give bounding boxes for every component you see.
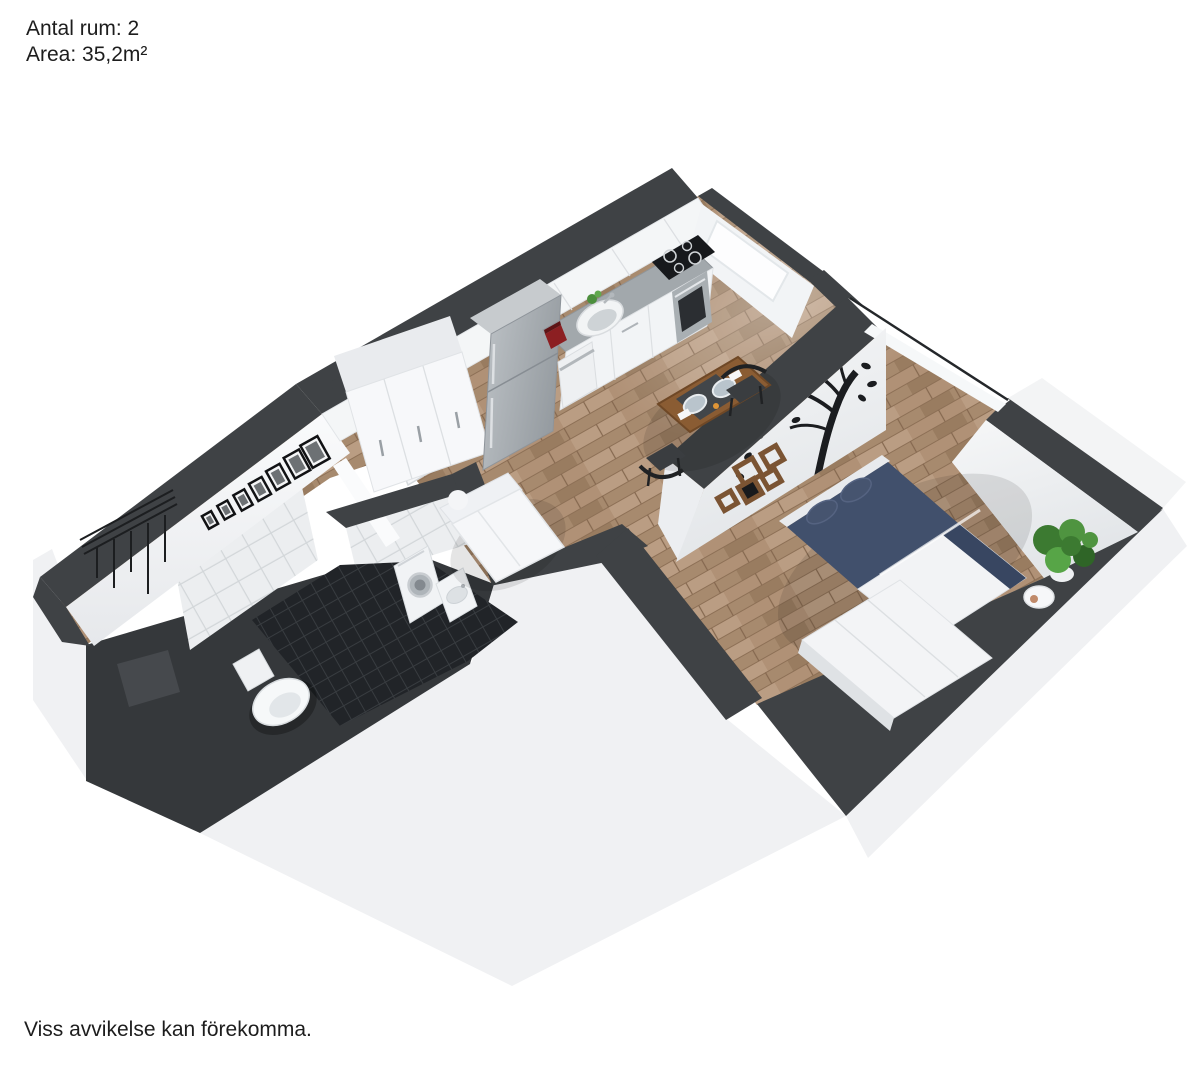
floor-plan-render xyxy=(0,0,1200,1066)
area-label: Area: 35,2m² xyxy=(26,42,147,68)
decor-item xyxy=(1030,595,1038,603)
candle xyxy=(713,403,719,409)
floorplan-page: Antal rum: 2 Area: 35,2m² Viss avvikelse… xyxy=(0,0,1200,1066)
plan-info: Antal rum: 2 Area: 35,2m² xyxy=(26,16,147,68)
side-table xyxy=(1024,586,1054,608)
rooms-count-label: Antal rum: 2 xyxy=(26,16,147,42)
disclaimer-text: Viss avvikelse kan förekomma. xyxy=(24,1018,312,1042)
